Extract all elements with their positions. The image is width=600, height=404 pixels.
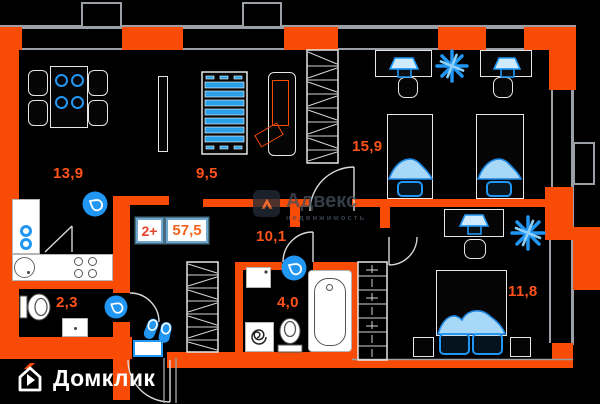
water-drop-icon [83,192,108,217]
closet-shelves [307,50,338,163]
watermark-subtitle: недвижимость [286,213,366,222]
room-label-hallway: 10,1 [256,229,286,244]
room-label-kitchen-living: 13,9 [53,166,83,181]
floor-plan: 13,9 9,5 15,9 10,1 4,0 2,3 11,8 2+ 57,5 … [0,0,600,404]
wardrobe-rail [358,262,387,360]
rooms-count-badge: 2+ [136,218,163,243]
total-area-badge: 57,5 [166,218,208,243]
slippers-icon [142,317,173,344]
sink-tap [264,270,267,273]
watermark: Адвекс недвижимость [253,190,366,222]
room-label-bedroom-2: 11,8 [508,284,538,299]
water-drop-icon [282,256,307,281]
domclick-logo: Домклик [14,361,155,395]
house-logo-icon [14,361,46,395]
desk-lamp-icon [390,58,520,234]
room-label-wc: 2,3 [56,295,78,310]
toilet [278,319,302,353]
room-label-bathroom: 4,0 [277,295,299,310]
striped-wardrobe [202,72,247,154]
washing-machine-spiral-icon [252,330,266,344]
domclick-logo-text: Домклик [53,365,155,392]
room-label-living: 9,5 [196,166,218,181]
advex-logo-icon [253,190,280,217]
area-badge: 2+ 57,5 [136,218,208,243]
water-drop-icon [105,296,128,319]
closet-shelves [187,262,218,352]
room-label-bedroom-1: 15,9 [352,139,382,154]
watermark-brand: Адвекс [286,190,366,212]
plant-icon [436,50,545,250]
toilet [20,294,50,320]
